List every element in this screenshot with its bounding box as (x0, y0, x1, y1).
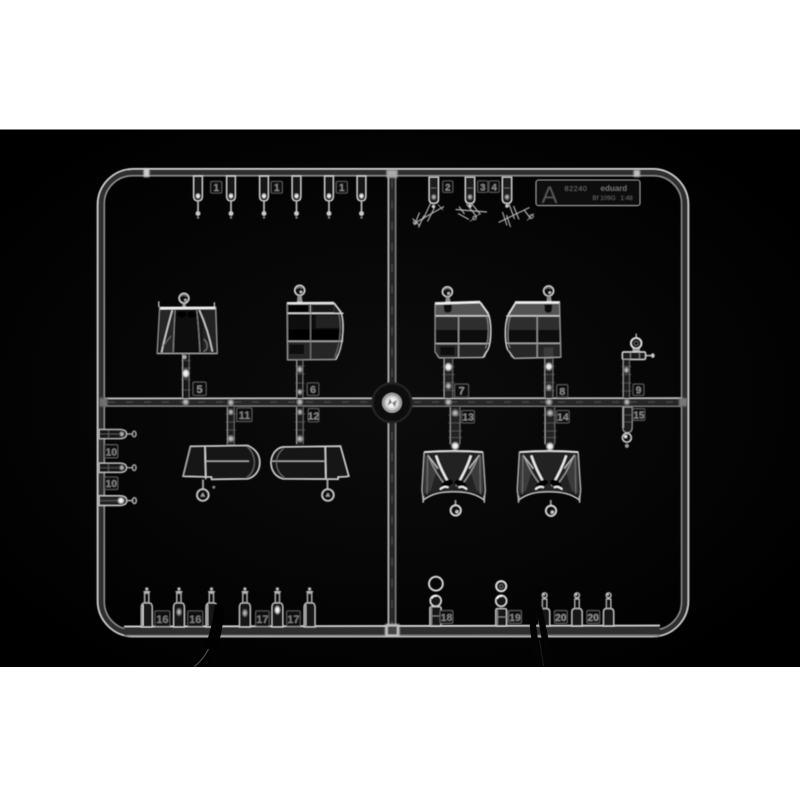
svg-text:11: 11 (239, 410, 251, 422)
svg-text:1: 1 (274, 183, 280, 194)
svg-text:2: 2 (445, 182, 450, 193)
svg-text:12: 12 (308, 410, 320, 422)
svg-text:1:48: 1:48 (621, 195, 634, 202)
svg-text:9: 9 (636, 386, 642, 397)
svg-text:13: 13 (462, 412, 474, 424)
svg-text:A: A (542, 182, 558, 209)
svg-text:1: 1 (214, 183, 220, 194)
svg-text:16: 16 (156, 614, 168, 626)
svg-text:6: 6 (310, 384, 316, 396)
svg-text:18: 18 (441, 612, 453, 624)
svg-text:17: 17 (287, 614, 299, 626)
svg-text:4: 4 (491, 182, 497, 193)
svg-text:14: 14 (557, 412, 569, 424)
svg-text:15: 15 (633, 410, 645, 421)
svg-text:19: 19 (509, 612, 521, 624)
svg-text:5: 5 (197, 384, 203, 396)
svg-text:20: 20 (587, 612, 599, 624)
svg-text:1: 1 (339, 183, 345, 194)
svg-text:7: 7 (459, 386, 465, 398)
svg-text:17: 17 (256, 614, 268, 626)
svg-text:3: 3 (480, 182, 485, 193)
svg-text:8: 8 (559, 386, 565, 398)
svg-text:10: 10 (105, 478, 117, 490)
svg-text:16: 16 (189, 614, 201, 626)
svg-text:Bf 109G: Bf 109G (593, 195, 616, 202)
svg-text:20: 20 (555, 612, 567, 624)
svg-text:eduard: eduard (601, 184, 628, 193)
svg-text:10: 10 (105, 446, 117, 458)
svg-text:82240: 82240 (565, 184, 588, 193)
